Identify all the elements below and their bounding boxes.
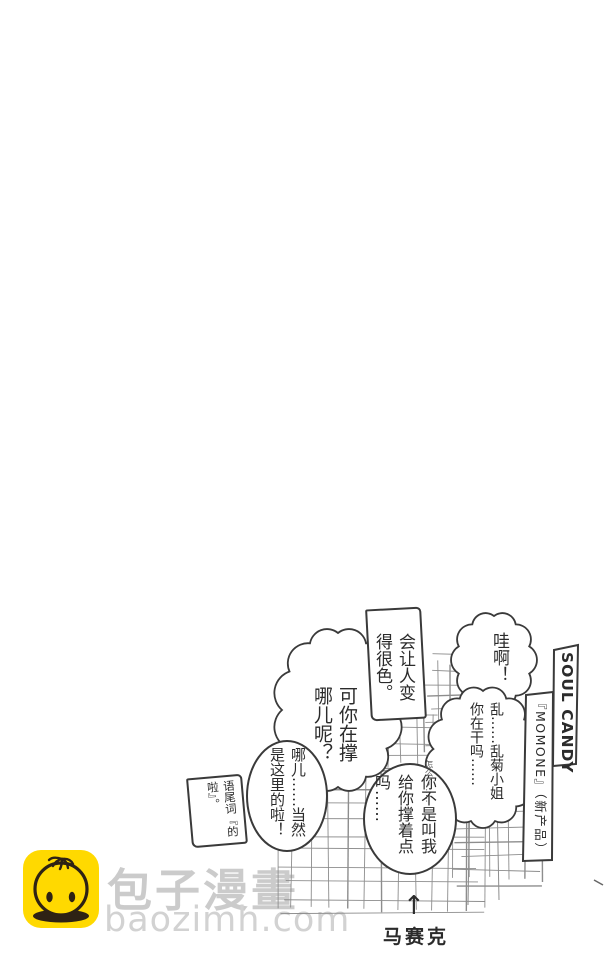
bubble-text-rangiku: 乱……乱菊小姐 你在干吗…… [466, 702, 506, 800]
product-box-title: SOUL CANDY [558, 652, 576, 774]
mosaic-arrow-icon: ↑ [403, 891, 425, 921]
side-note-text: 怎么了…… [423, 760, 433, 803]
bubble-rect-tail-word: 语尾词『的 啦』。 [186, 774, 248, 849]
bubble-text-here: 哪儿……当然 是这里的啦！ [266, 747, 308, 837]
bubble-text-tail-word: 语尾词『的 啦』。 [204, 779, 241, 839]
mosaic-label: 马赛克 [383, 922, 449, 949]
bubble-text-lewd: 会让人变 得很色。 [370, 633, 416, 701]
bubble-text-prop-where: 可你在撑 哪儿呢？ [309, 686, 359, 762]
bubble-text-wah: 哇啊！ [488, 632, 510, 683]
manga-page: 包子漫畫 baozimh.com 语尾词『的 啦』。 哇啊！ 会让人变 得很色。… [0, 0, 612, 960]
stray-pen-mark [594, 880, 603, 885]
product-box-subtitle: 『MOMONE』（新产品） [532, 697, 551, 856]
